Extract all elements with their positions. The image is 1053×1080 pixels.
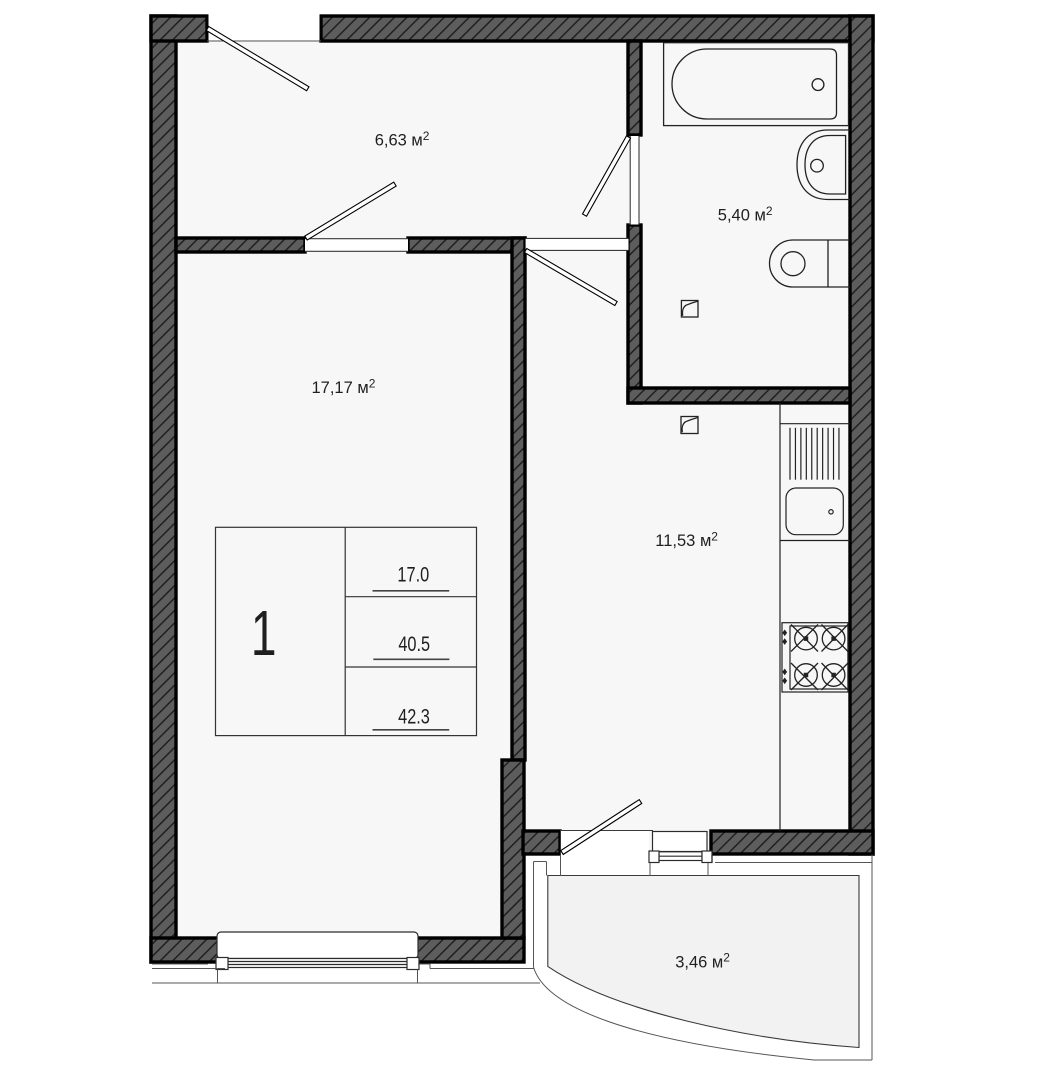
svg-text:42.3: 42.3 — [398, 706, 430, 730]
svg-text:17.0: 17.0 — [397, 564, 429, 588]
svg-text:6,63 м2: 6,63 м2 — [375, 129, 430, 150]
svg-text:5,40 м2: 5,40 м2 — [718, 204, 773, 225]
svg-text:1: 1 — [251, 598, 277, 669]
svg-text:40.5: 40.5 — [398, 633, 430, 657]
svg-text:3,46 м2: 3,46 м2 — [675, 951, 730, 972]
svg-text:17,17 м2: 17,17 м2 — [312, 376, 376, 397]
svg-text:11,53 м2: 11,53 м2 — [655, 529, 718, 550]
